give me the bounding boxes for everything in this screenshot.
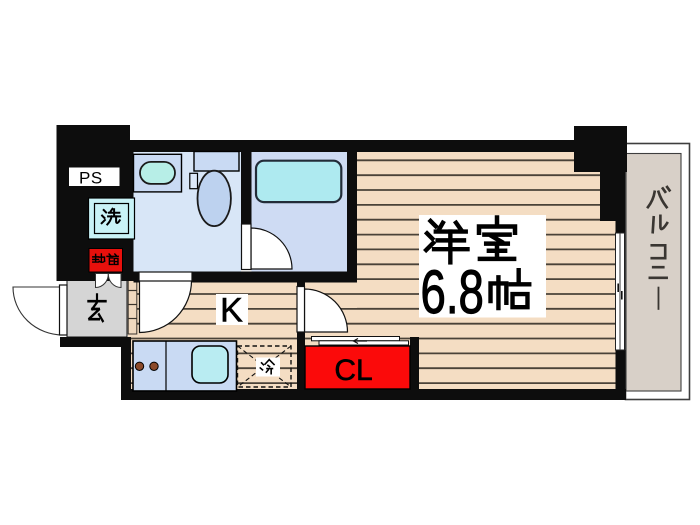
- svg-text:6.8: 6.8: [421, 258, 484, 326]
- svg-text:PS: PS: [79, 169, 103, 188]
- svg-text:CL: CL: [334, 354, 372, 387]
- svg-text:K: K: [220, 292, 243, 330]
